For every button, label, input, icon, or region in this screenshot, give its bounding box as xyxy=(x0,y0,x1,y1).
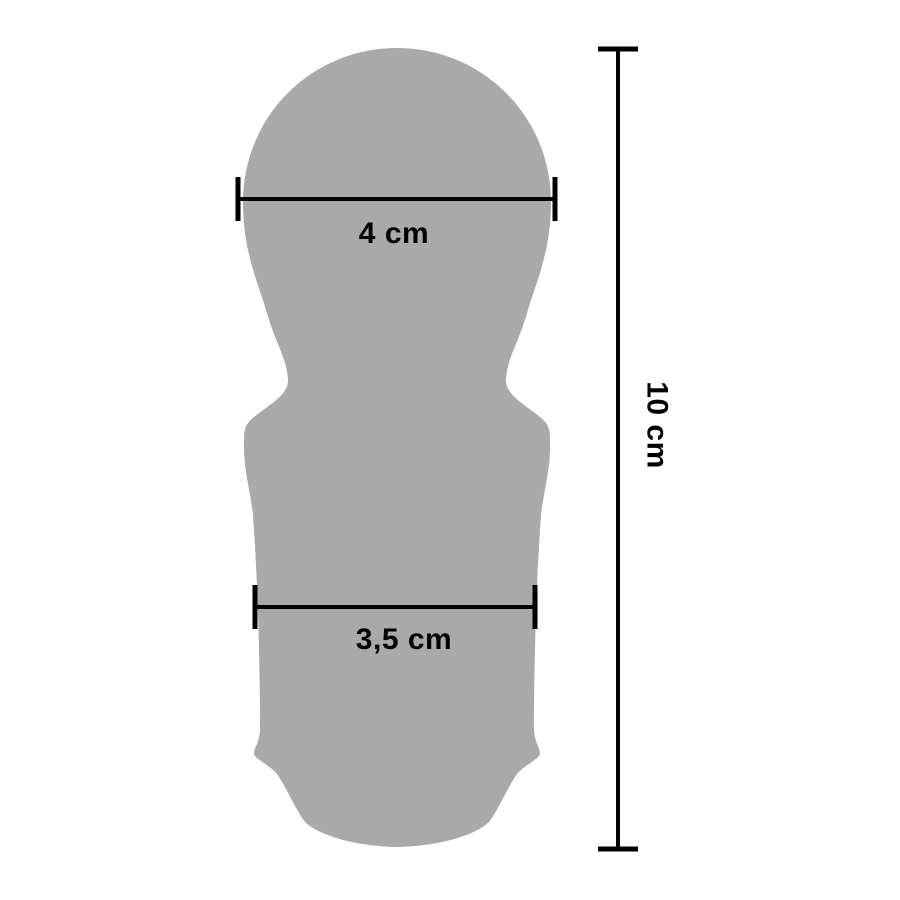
dimension-diagram-svg: 4 cm 3,5 cm 10 cm xyxy=(0,0,900,900)
body-width-label: 3,5 cm xyxy=(356,623,452,656)
total-height-label: 10 cm xyxy=(641,381,674,469)
dimension-diagram: 4 cm 3,5 cm 10 cm xyxy=(0,0,900,900)
total-height-measurement: 10 cm xyxy=(598,49,674,849)
product-silhouette xyxy=(243,48,551,847)
head-width-label: 4 cm xyxy=(359,217,429,250)
